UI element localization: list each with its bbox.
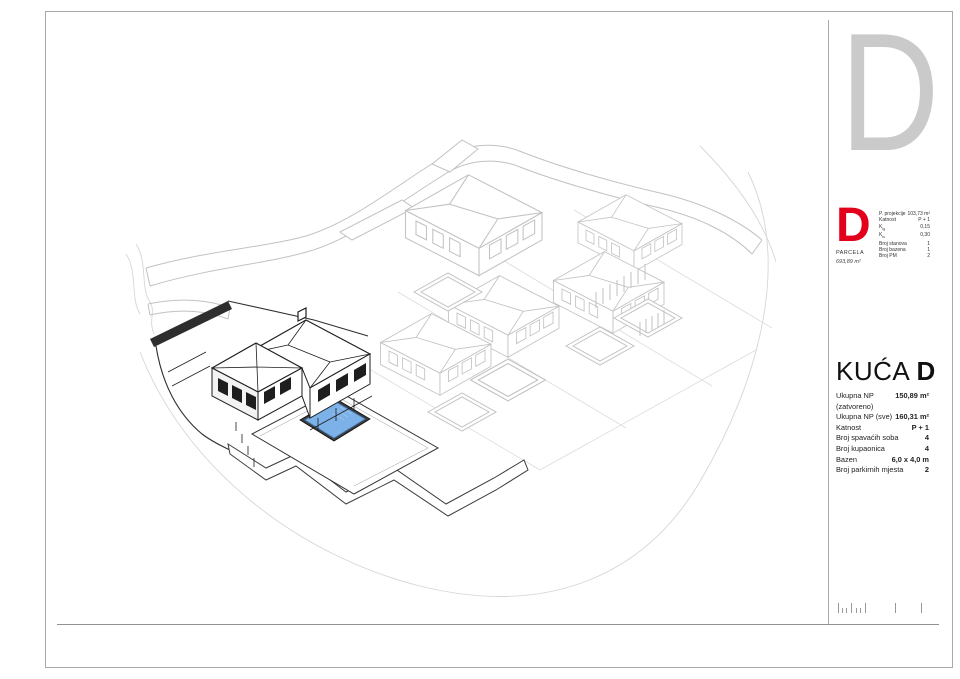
scale-tick [860,608,861,613]
neighbor-villas [340,175,682,431]
spec-row: Broj parkirnih mjesta 2 [836,465,929,476]
house-spec-table: Ukupna NP (zatvoreno) 150,89 m² Ukupna N… [836,391,929,476]
spec-row: Broj PM 2 [879,253,930,259]
spec-row: Broj spavaćih soba 4 [836,433,929,444]
spec-row: Kis 0,30 [879,232,930,240]
scale-tick [851,603,852,613]
spec-row: Broj kupaonica 4 [836,444,929,455]
scale-tick [846,608,847,613]
scale-tick [921,603,922,613]
neighbor-pool [428,393,496,431]
scale-tick [895,603,896,613]
scale-tick [842,608,843,613]
spec-row: Katnost P + 1 [836,423,929,434]
house-title: KUĆA D [836,356,936,387]
parcela-label: PARCELA [836,250,864,256]
scale-bar [838,601,930,613]
spec-row: Ukupna NP (zatvoreno) 150,89 m² [836,391,929,412]
scale-tick [856,608,857,613]
parcel-spec-table: P. projekcije 103,73 m² Katnost P + 1 Ki… [879,211,930,260]
house-d-chimney [298,308,306,321]
drawing-sheet: D D PARCELA 693,89 m² P. projekcije 103,… [0,0,960,679]
villa [406,175,543,276]
scale-tick [865,603,866,613]
parcela-area: 693,89 m² [836,259,861,265]
site-plan-drawing [0,0,960,679]
parcel-letter: D [836,202,871,250]
spec-row: Kig 0,15 [879,224,930,232]
sheet-letter: D [840,8,939,176]
scale-tick [838,603,839,613]
spec-row: Bazen 6,0 x 4,0 m [836,455,929,466]
spec-row: Ukupna NP (sve) 160,31 m² [836,412,929,423]
